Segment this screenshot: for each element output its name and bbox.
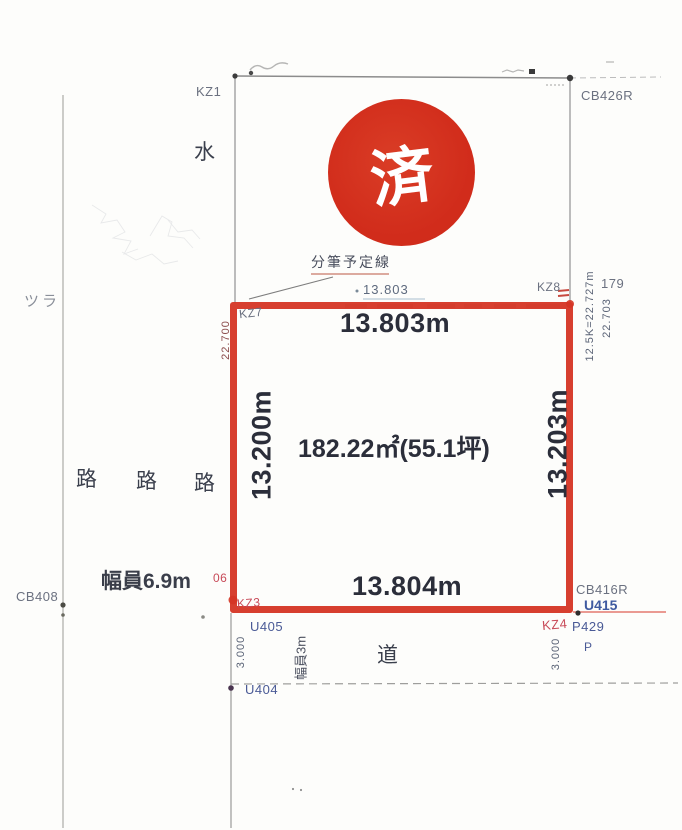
point-label-p429: P429: [572, 619, 604, 634]
right-outer-measure-a: 12.5K=22.727m: [584, 271, 596, 362]
point-label-u405: U405: [250, 619, 283, 634]
subdivision-label: 分筆予定線: [311, 252, 391, 272]
dimension-left: 13.200m: [247, 390, 278, 500]
point-label-cb426r: CB426R: [581, 88, 633, 103]
road-dashed-line: [231, 683, 678, 684]
sold-stamp-label: 済: [365, 124, 439, 222]
side-length-right: 3.000: [550, 638, 562, 671]
sold-stamp: 済: [328, 99, 475, 246]
point-label-cb416r: CB416R: [576, 582, 628, 597]
road-kanji-1: 路: [76, 463, 97, 493]
left-outer-measure: 22.700: [220, 320, 232, 360]
road-kanji-main: 道: [377, 639, 398, 669]
boundary-line-top: [235, 76, 570, 78]
lot-number: 179: [601, 276, 624, 291]
tsura-katakana: ツラ: [24, 290, 60, 311]
point-label-u404: U404: [245, 682, 278, 697]
faint-annotation-marks: [250, 62, 614, 85]
point-label-p: P: [584, 640, 592, 654]
dimension-top: 13.803m: [340, 308, 450, 339]
road-width-side: 幅員3m: [291, 636, 310, 680]
dimension-right: 13.203m: [543, 389, 574, 499]
point-label-cb408: CB408: [16, 589, 58, 604]
mark-06: 06: [213, 571, 227, 585]
survey-map-page: 済 13.803m 13.804m 13.200m 13.203m 182.22…: [0, 0, 682, 830]
point-label-kz3: KZ3: [237, 595, 261, 611]
subdivision-leader-line: [249, 277, 333, 299]
dimension-bottom: 13.804m: [352, 571, 462, 602]
boundary-line-top-extension: [570, 77, 661, 78]
top-small-measure: 13.803: [363, 282, 409, 297]
side-length-left: 3.000: [235, 636, 247, 669]
faint-scribble: [92, 205, 200, 264]
right-outer-measure-b: 22.703: [601, 298, 613, 338]
water-kanji: 水: [194, 136, 215, 166]
road-kanji-3: 路: [194, 467, 215, 497]
point-label-kz1: KZ1: [196, 84, 221, 99]
point-label-kz7: KZ7: [238, 305, 263, 321]
road-kanji-2: 路: [136, 465, 157, 495]
point-label-kz4: KZ4: [541, 616, 568, 633]
parcel-area: 182.22㎡(55.1坪): [298, 429, 490, 465]
point-label-kz8: KZ8: [537, 280, 561, 294]
point-label-u415: U415: [584, 597, 617, 613]
road-width-main: 幅員6.9m: [101, 565, 191, 595]
